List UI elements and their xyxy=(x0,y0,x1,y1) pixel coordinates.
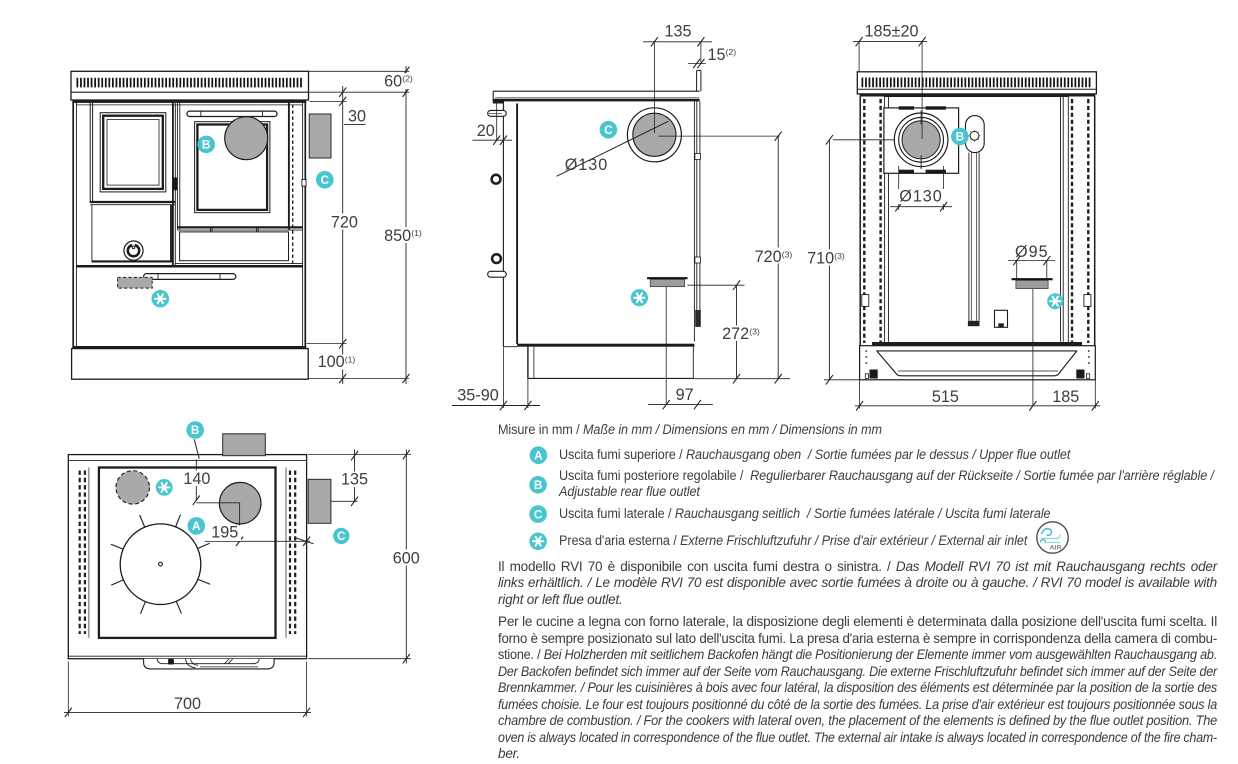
svg-text:C: C xyxy=(321,173,330,187)
svg-text:B: B xyxy=(534,478,543,492)
svg-text:720: 720 xyxy=(331,213,358,231)
svg-text:B: B xyxy=(191,423,200,437)
svg-text:AIR: AIR xyxy=(1050,545,1062,552)
svg-text:20: 20 xyxy=(477,122,495,140)
svg-text:C: C xyxy=(604,123,613,137)
svg-text:C: C xyxy=(337,529,346,543)
svg-text:35-90: 35-90 xyxy=(457,387,498,405)
svg-text:140: 140 xyxy=(183,470,210,488)
svg-text:195: 195 xyxy=(211,523,238,541)
svg-text:600: 600 xyxy=(393,549,420,567)
svg-text:97: 97 xyxy=(676,386,694,404)
svg-text:15(2): 15(2) xyxy=(708,46,737,64)
svg-text:Ø130: Ø130 xyxy=(899,188,943,206)
svg-text:515: 515 xyxy=(932,388,959,406)
svg-text:B: B xyxy=(202,138,211,152)
svg-text:A: A xyxy=(534,448,543,462)
svg-text:185: 185 xyxy=(1052,388,1079,406)
svg-text:C: C xyxy=(534,507,543,521)
svg-text:185±20: 185±20 xyxy=(865,23,919,41)
svg-text:Ø130: Ø130 xyxy=(565,156,609,174)
svg-text:135: 135 xyxy=(664,22,691,40)
svg-text:B: B xyxy=(956,130,965,144)
svg-text:135: 135 xyxy=(341,471,368,489)
svg-text:30: 30 xyxy=(348,108,366,126)
svg-text:Ø95: Ø95 xyxy=(1015,243,1049,261)
svg-text:A: A xyxy=(192,519,201,533)
svg-text:700: 700 xyxy=(174,695,201,713)
